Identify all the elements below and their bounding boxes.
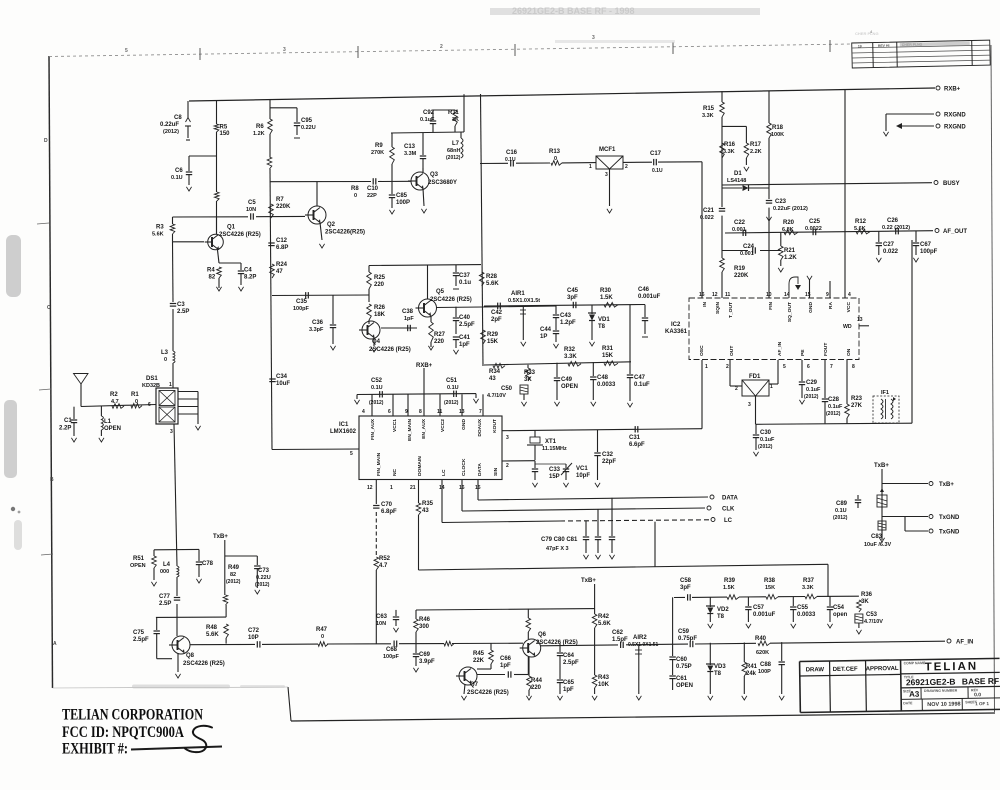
svg-text:1.5K: 1.5K [723,585,735,591]
svg-text:C69: C69 [419,652,431,658]
svg-text:C44: C44 [540,327,552,333]
svg-text:C3: C3 [177,302,185,308]
svg-text:C53: C53 [866,612,878,618]
svg-text:SQIN: SQIN [715,302,721,314]
svg-text:R48: R48 [206,625,218,631]
svg-text:Q2: Q2 [327,222,336,228]
svg-text:12: 12 [712,292,718,298]
svg-text:C66: C66 [500,656,512,662]
svg-text:2SC4226 (R25): 2SC4226 (R25) [467,690,509,696]
svg-text:C48: C48 [597,375,609,381]
svg-text:XT1: XT1 [545,439,557,445]
svg-text:C8: C8 [174,115,182,121]
svg-text:C31: C31 [629,435,641,441]
svg-text:REV HI: REV HI [878,44,890,48]
svg-text:22K: 22K [473,658,485,664]
svg-text:220: 220 [374,282,385,288]
svg-text:22P: 22P [367,193,377,199]
svg-text:AF_IN: AF_IN [956,640,973,646]
svg-text:R3: R3 [156,225,164,231]
svg-text:4: 4 [362,409,365,415]
svg-text:3.9pF: 3.9pF [419,659,435,665]
svg-text:3pF: 3pF [680,585,691,591]
svg-text:R39: R39 [724,578,736,584]
svg-text:2.2P: 2.2P [59,426,71,432]
svg-text:R45: R45 [473,651,485,657]
svg-text:TxB+: TxB+ [581,578,596,584]
svg-text:R33: R33 [524,370,536,376]
svg-text:TELIAN CORPORATION: TELIAN CORPORATION [62,707,203,724]
svg-text:C17: C17 [650,151,662,157]
svg-text:2pF: 2pF [491,317,502,323]
svg-text:6: 6 [148,402,151,408]
svg-text:0.1U: 0.1U [171,175,183,181]
svg-text:10N: 10N [376,621,386,627]
svg-text:8: 8 [419,409,422,415]
svg-text:R32: R32 [564,347,576,353]
svg-text:VCC: VCC [846,302,852,313]
svg-text:R37: R37 [803,578,815,584]
svg-text:C95: C95 [301,118,313,124]
svg-text:OPEN: OPEN [130,563,146,569]
svg-text:C79 C80 C81: C79 C80 C81 [541,537,578,543]
svg-text:C75: C75 [133,630,145,636]
svg-text:R6: R6 [256,124,264,130]
svg-text:82: 82 [209,275,216,281]
svg-text:RXB+: RXB+ [944,87,961,93]
svg-text:3K: 3K [524,377,532,383]
svg-text:270K: 270K [371,150,384,156]
svg-text:MCF1: MCF1 [599,147,616,153]
svg-text:4.7: 4.7 [379,563,388,569]
svg-text:6: 6 [807,364,810,370]
svg-text:D: D [44,138,48,144]
svg-text:1pF: 1pF [500,663,511,669]
svg-text:R36: R36 [861,592,873,598]
svg-text:T8: T8 [598,324,606,330]
svg-text:R43: R43 [598,675,610,681]
svg-text:C24: C24 [743,244,755,250]
svg-text:R30: R30 [600,288,612,294]
svg-text:0.1uF: 0.1uF [828,404,843,410]
svg-text:DATA: DATA [722,496,738,502]
svg-text:FIN_AUX: FIN_AUX [370,418,376,440]
svg-text:R31: R31 [602,346,614,352]
svg-text:C40: C40 [459,315,471,321]
svg-text:3.3K: 3.3K [564,354,577,360]
svg-text:5: 5 [350,451,353,457]
svg-text:COMP NAME: COMP NAME [904,661,926,665]
svg-text:3.3pF: 3.3pF [309,327,324,333]
svg-text:R28: R28 [486,274,498,280]
svg-text:1.2K: 1.2K [253,131,265,137]
svg-text:2SC3680Y: 2SC3680Y [428,180,457,186]
svg-text:C10: C10 [367,186,379,192]
svg-text:6.8pF: 6.8pF [381,509,397,515]
svg-text:R51: R51 [133,556,145,562]
svg-text:(2012): (2012) [444,400,459,406]
svg-text:SIN: SIN [493,467,499,476]
svg-text:Q4: Q4 [372,339,381,345]
svg-text:0.22uF: 0.22uF [160,122,179,128]
svg-text:A: A [53,641,57,647]
svg-text:C59: C59 [678,629,690,635]
svg-text:4: 4 [848,292,851,298]
svg-text:2.5pF: 2.5pF [133,637,149,643]
svg-text:FOUT: FOUT [823,343,829,356]
svg-text:C70: C70 [381,502,393,508]
svg-text:C28: C28 [828,397,840,403]
svg-text:C41: C41 [459,335,471,341]
svg-text:R34: R34 [489,369,501,375]
svg-text:4.7/10V: 4.7/10V [864,619,883,625]
svg-text:R44: R44 [531,678,543,684]
svg-text:OPEN: OPEN [104,426,121,432]
svg-text:DRAWING NUMBER: DRAWING NUMBER [924,689,958,694]
svg-text:1: 1 [705,364,708,370]
svg-text:5.6K: 5.6K [486,281,499,287]
svg-text:1.2pF: 1.2pF [560,320,576,326]
svg-text:C29: C29 [806,380,818,386]
svg-text:Q1: Q1 [227,225,236,231]
svg-text:C16: C16 [506,150,518,156]
svg-text:26921GE2-B: 26921GE2-B [906,677,956,688]
svg-text:FIN_MAIN: FIN_MAIN [376,452,382,476]
svg-text:1pF: 1pF [404,316,414,322]
svg-text:R38: R38 [764,578,776,584]
svg-text:C25: C25 [809,219,821,225]
svg-text:open: open [833,612,848,618]
svg-text:R13: R13 [549,149,561,155]
svg-text:KA3361: KA3361 [665,329,688,335]
svg-text:(2012): (2012) [163,129,179,135]
svg-text:C34: C34 [276,374,288,380]
svg-text:5.6K: 5.6K [206,632,219,638]
svg-text:C26: C26 [887,218,899,224]
svg-text:A3: A3 [909,690,920,699]
svg-text:0.1uF: 0.1uF [806,387,821,393]
svg-text:47pF X 3: 47pF X 3 [546,546,569,552]
svg-text:R1: R1 [131,392,139,398]
svg-text:AIR1: AIR1 [511,291,525,297]
svg-text:3.3K: 3.3K [702,113,714,119]
svg-text:VC1: VC1 [576,466,588,472]
svg-text:24k: 24k [746,671,757,677]
svg-text:CHER PLNG: CHER PLNG [855,31,879,36]
svg-text:220K: 220K [276,204,291,210]
svg-text:0.1U: 0.1U [835,508,847,514]
svg-text:2SC4226 (R25): 2SC4226 (R25) [430,297,472,303]
svg-text:C35: C35 [296,299,308,305]
svg-text:C67: C67 [920,242,932,248]
svg-text:R42: R42 [598,614,610,620]
svg-text:100P: 100P [396,200,410,206]
svg-text:0.1U: 0.1U [505,157,516,163]
svg-text:FD1: FD1 [749,374,761,380]
svg-text:EN_AUX: EN_AUX [421,418,427,439]
svg-text:AF_IN: AF_IN [777,341,783,356]
svg-text:3.3K: 3.3K [802,585,814,591]
svg-text:C1: C1 [64,418,72,424]
svg-text:C55: C55 [797,605,809,611]
svg-text:0.001: 0.001 [740,251,754,257]
svg-text:10uF: 10uF [276,381,290,387]
svg-text:1.2K: 1.2K [784,255,797,261]
svg-text:LS4148: LS4148 [727,178,746,184]
svg-text:SQ_OUT: SQ_OUT [787,302,793,322]
svg-text:OPEN: OPEN [676,683,693,689]
svg-text:Q7: Q7 [470,682,479,688]
svg-text:EXHIBIT #:: EXHIBIT #: [62,741,128,758]
svg-text:AIR2: AIR2 [633,635,647,641]
svg-text:FCC ID: NPQTC900A: FCC ID: NPQTC900A [62,724,185,741]
svg-text:4.7: 4.7 [111,399,119,405]
svg-text:2.2K: 2.2K [750,149,762,155]
svg-text:0.1U: 0.1U [447,385,459,391]
svg-text:0.5X1.0X1.5t: 0.5X1.0X1.5t [508,298,540,304]
svg-text:RXGND: RXGND [944,125,966,131]
svg-text:15K: 15K [765,585,775,591]
svg-text:9: 9 [826,292,829,298]
svg-text:R29: R29 [487,332,499,338]
svg-text:5: 5 [783,364,786,370]
svg-text:C72: C72 [248,628,260,634]
svg-text:LC: LC [724,518,733,524]
svg-text:0.1u: 0.1u [459,280,471,286]
svg-text:2: 2 [506,463,509,469]
svg-text:27K: 27K [851,403,863,409]
svg-text:68nH: 68nH [447,148,460,154]
svg-text:R2: R2 [110,392,118,398]
svg-text:C38: C38 [402,309,414,315]
svg-text:11: 11 [437,409,443,415]
svg-text:0: 0 [554,156,557,162]
svg-text:GND: GND [808,302,814,313]
svg-text:CLOCK: CLOCK [461,458,467,476]
svg-text:BUSY: BUSY [943,181,960,187]
svg-text:VD1: VD1 [598,317,610,323]
svg-text:7: 7 [479,409,482,415]
svg-text:(2012): (2012) [833,515,848,521]
svg-text:43: 43 [489,376,496,382]
svg-text:KD32B: KD32B [142,383,160,389]
svg-text:0.001uF: 0.001uF [638,294,661,300]
svg-text:2.5P: 2.5P [159,601,171,607]
svg-text:R26: R26 [374,305,386,311]
svg-text:C52: C52 [371,378,383,384]
svg-text:R47: R47 [316,627,328,633]
svg-text:1: 1 [169,382,172,388]
svg-text:Q5: Q5 [436,289,445,295]
svg-text:2: 2 [735,386,738,392]
svg-text:DRAW: DRAW [806,667,825,673]
svg-text:3K: 3K [452,117,459,123]
svg-text:C58: C58 [680,578,692,584]
svg-text:L7: L7 [452,141,460,147]
svg-text:C33: C33 [549,467,561,473]
svg-text:R49: R49 [228,565,240,571]
svg-text:RXGND: RXGND [944,113,966,119]
svg-text:C45: C45 [567,288,579,294]
svg-text:R18: R18 [772,125,784,131]
svg-text:0.22uF (2012): 0.22uF (2012) [773,206,808,212]
svg-text:VCC2: VCC2 [440,419,446,432]
svg-text:0.75P: 0.75P [676,664,692,670]
svg-text:GND: GND [461,419,467,430]
svg-text:10N: 10N [246,207,256,213]
svg-text:APPROVAL: APPROVAL [866,666,899,673]
svg-text:C49: C49 [561,377,573,383]
svg-text:C42: C42 [491,310,503,316]
svg-text:C12: C12 [276,238,288,244]
svg-text:C73: C73 [258,568,270,574]
svg-text:100K: 100K [771,132,784,138]
svg-text:2.5pF: 2.5pF [459,322,475,328]
svg-text:VD3: VD3 [714,664,726,670]
svg-text:6.8K: 6.8K [782,227,794,233]
svg-text:100pF: 100pF [920,249,938,255]
svg-text:620K: 620K [756,650,769,656]
svg-text:R35: R35 [422,501,434,507]
svg-text:C61: C61 [676,676,688,682]
svg-text:R17: R17 [750,142,762,148]
svg-text:0.0022: 0.0022 [805,226,822,232]
svg-text:220: 220 [434,339,445,345]
svg-text:15P: 15P [549,474,560,480]
svg-text:C63: C63 [376,614,388,620]
svg-text:C77: C77 [159,594,171,600]
svg-text:3: 3 [170,429,173,435]
svg-text:C27: C27 [883,242,895,248]
svg-text:0.75pF: 0.75pF [678,636,697,642]
svg-text:R52: R52 [379,556,391,562]
svg-text:C37: C37 [459,273,471,279]
svg-text:0.001uF: 0.001uF [753,612,776,618]
svg-text:C4: C4 [244,268,252,274]
svg-text:R16: R16 [724,142,736,148]
svg-text:DET.CEF: DET.CEF [833,667,858,673]
svg-text:2SC4226 (R25): 2SC4226 (R25) [219,232,261,238]
svg-text:DOMAIN: DOMAIN [417,456,423,476]
svg-text:NOV 10 1998: NOV 10 1998 [927,701,960,708]
svg-text:ON: ON [846,348,852,356]
svg-text:4.7/10V: 4.7/10V [487,393,506,399]
svg-text:1.5pF: 1.5pF [612,637,628,643]
svg-text:Q3: Q3 [430,172,439,178]
svg-text:R11: R11 [448,110,459,116]
svg-text:IN: IN [702,302,708,307]
svg-text:R15: R15 [703,106,715,112]
svg-text:OUT: OUT [729,346,735,356]
svg-text:TELIAN: TELIAN [925,661,979,674]
svg-text:1: 1 [390,485,393,491]
svg-text:R5: R5 [220,125,228,131]
svg-text:BASE RF: BASE RF [962,676,999,687]
svg-text:(2012): (2012) [255,582,270,588]
svg-text:R27: R27 [434,332,446,338]
svg-text:5.6K: 5.6K [152,232,164,238]
svg-text:R23: R23 [851,396,863,402]
svg-text:R25: R25 [374,275,386,281]
svg-text:R9: R9 [375,143,383,149]
svg-text:IC2: IC2 [671,322,681,328]
svg-text:8.2P: 8.2P [244,275,256,281]
svg-text:0: 0 [135,399,138,405]
svg-text:C89: C89 [836,501,848,507]
svg-text:T8: T8 [714,671,722,677]
svg-text:Q8: Q8 [186,653,195,659]
svg-text:2.5P: 2.5P [177,309,189,315]
svg-text:7: 7 [830,364,833,370]
svg-text:C23: C23 [775,199,787,205]
svg-text:DOAUX: DOAUX [477,418,483,436]
svg-text:2: 2 [440,44,443,50]
svg-text:R24: R24 [276,262,288,268]
svg-text:PE: PE [800,349,806,356]
svg-text:R4: R4 [207,268,215,274]
svg-text:NC: NC [392,468,398,476]
svg-text:R21: R21 [784,248,796,254]
svg-text:0.0: 0.0 [974,692,981,698]
svg-text:TxB+: TxB+ [874,463,889,469]
svg-text:C60: C60 [676,657,688,663]
svg-text:1: 1 [770,384,773,390]
svg-text:C47: C47 [634,375,646,381]
svg-text:8: 8 [852,364,855,370]
svg-text:1 OF 1: 1 OF 1 [975,701,989,706]
svg-text:300: 300 [419,624,430,630]
svg-text:21: 21 [410,485,416,491]
svg-text:6.8P: 6.8P [276,245,288,251]
svg-text:TxGND: TxGND [939,530,960,536]
svg-text:6: 6 [388,409,391,415]
svg-text:2SC4226 (R25): 2SC4226 (R25) [183,661,225,667]
svg-text:11.15MHz: 11.15MHz [542,446,567,452]
svg-text:C83: C83 [871,534,883,540]
svg-text:0.0033: 0.0033 [797,612,816,618]
svg-text:C32: C32 [602,452,614,458]
svg-text:CLK: CLK [722,507,735,513]
svg-text:9: 9 [405,409,408,415]
svg-text:0: 0 [164,357,167,363]
svg-text:C6: C6 [175,168,183,174]
svg-text:C78: C78 [202,561,214,567]
svg-text:C46: C46 [638,287,650,293]
svg-text:(2012): (2012) [804,394,819,400]
svg-text:C57: C57 [753,605,765,611]
svg-text:VD2: VD2 [717,607,729,613]
svg-text:18K: 18K [374,312,386,318]
svg-text:13: 13 [459,409,465,415]
svg-text:C: C [47,305,51,311]
svg-text:(2012): (2012) [826,411,841,417]
svg-text:DATA: DATA [477,463,483,476]
svg-text:C50: C50 [501,386,513,392]
svg-text:1pF: 1pF [459,342,470,348]
svg-text:0.022: 0.022 [883,249,899,255]
svg-text:C85: C85 [396,193,408,199]
svg-text:FIN: FIN [768,302,774,310]
svg-text:IF1: IF1 [881,390,889,396]
svg-text:0: 0 [321,634,324,640]
svg-text:15K: 15K [487,339,499,345]
svg-text:C92: C92 [423,110,435,116]
svg-text:C54: C54 [833,605,845,611]
svg-text:220: 220 [531,685,542,691]
svg-text:R40: R40 [755,636,767,642]
svg-text:VCC1: VCC1 [392,419,398,432]
svg-text:1.5K: 1.5K [600,295,613,301]
